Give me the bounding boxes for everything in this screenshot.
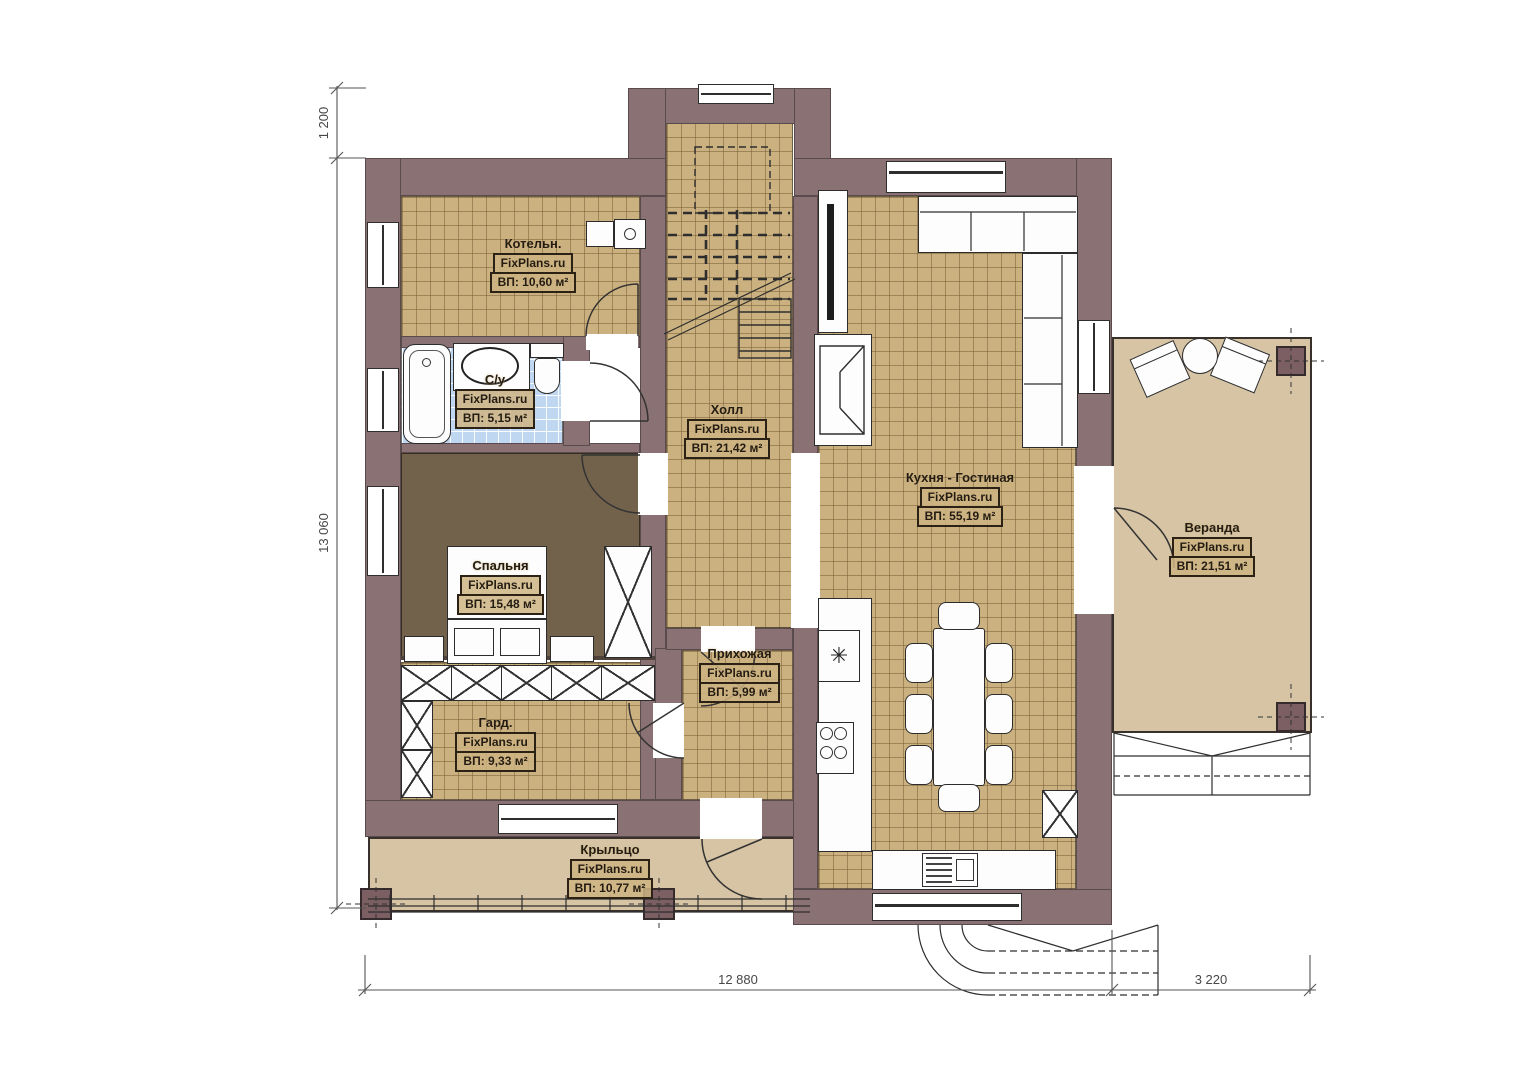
- bathtub-drain: [422, 358, 431, 367]
- sink-symbol-icon: ✳: [830, 643, 848, 669]
- nightstand: [550, 636, 594, 662]
- room-area: ВП: 55,19 м²: [917, 506, 1004, 527]
- duct-shaft: [1042, 790, 1078, 838]
- window-stair-bay: [698, 84, 774, 104]
- door-opening-bedroom: [638, 453, 668, 515]
- door-opening-wardrobe: [653, 703, 684, 758]
- watermark: FixPlans.ru: [699, 663, 780, 684]
- room-name: Веранда: [1184, 520, 1239, 535]
- veranda-post: [1276, 702, 1306, 732]
- floor-hall-stairs: [666, 122, 793, 628]
- pillow: [500, 628, 540, 656]
- floor-plan-canvas: ✳ Котельн. FixPlans.ru ВП: 10,60 м² С/у …: [0, 0, 1528, 1080]
- dim-veranda-width: 3 220: [1195, 972, 1228, 987]
- room-label-porch: Крыльцо FixPlans.ru ВП: 10,77 м²: [540, 842, 680, 899]
- dim-bay-offset: 1 200: [316, 107, 331, 140]
- watermark: FixPlans.ru: [687, 419, 768, 440]
- watermark: FixPlans.ru: [455, 389, 536, 410]
- watermark: FixPlans.ru: [455, 732, 536, 753]
- door-opening-bathroom: [561, 361, 592, 421]
- wardrobe-cabinet: [451, 665, 502, 701]
- room-area: ВП: 21,51 м²: [1169, 556, 1256, 577]
- room-name: Холл: [711, 402, 744, 417]
- chair: [905, 643, 933, 683]
- door-opening-boiler: [586, 334, 638, 350]
- door-opening-porch: [700, 798, 762, 839]
- dresser: [604, 546, 652, 658]
- room-name: Прихожая: [707, 646, 771, 661]
- room-area: ВП: 10,77 м²: [567, 878, 654, 899]
- kitchen-sink: ✳: [818, 630, 860, 682]
- wardrobe-cabinet: [401, 665, 452, 701]
- dim-plan-width: 12 880: [718, 972, 758, 987]
- stove-burner: [820, 746, 833, 759]
- wardrobe-cabinet: [601, 665, 655, 701]
- room-label-hall: Холл FixPlans.ru ВП: 21,42 м²: [662, 402, 792, 459]
- chair: [938, 602, 980, 630]
- chair: [985, 694, 1013, 734]
- watermark: FixPlans.ru: [493, 253, 574, 274]
- room-area: ВП: 10,60 м²: [490, 272, 577, 293]
- veranda-table: [1182, 338, 1218, 374]
- watermark: FixPlans.ru: [920, 487, 1001, 508]
- window-kitchen-right: [1078, 320, 1110, 394]
- wall-top-left: [365, 158, 666, 196]
- room-name: Кухня - Гостиная: [906, 470, 1014, 485]
- watermark: FixPlans.ru: [460, 575, 541, 596]
- chair: [985, 745, 1013, 785]
- curved-steps: [918, 925, 1158, 995]
- chair: [905, 694, 933, 734]
- bed-blanket-line: [447, 618, 547, 620]
- window-bathroom-left: [367, 368, 399, 432]
- fireplace: [814, 334, 872, 446]
- window-kitchen-top: [886, 161, 1006, 193]
- window-bedroom-left: [367, 486, 399, 576]
- appliance-vent: [926, 857, 952, 883]
- veranda-post: [1276, 346, 1306, 376]
- boiler-gauge: [624, 228, 636, 240]
- door-opening-veranda: [1074, 466, 1114, 614]
- chair: [905, 745, 933, 785]
- tv-screen: [827, 204, 834, 320]
- room-label-bathroom: С/у FixPlans.ru ВП: 5,15 м²: [430, 372, 560, 429]
- sofa-section-horizontal: [918, 196, 1078, 253]
- dim-plan-height: 13 060: [316, 513, 331, 553]
- room-area: ВП: 5,15 м²: [455, 408, 535, 429]
- stove-burner: [820, 727, 833, 740]
- room-area: ВП: 9,33 м²: [455, 751, 535, 772]
- wardrobe-cabinet: [551, 665, 602, 701]
- room-name: Котельн.: [505, 236, 562, 251]
- room-label-kitchen-living: Кухня - Гостиная FixPlans.ru ВП: 55,19 м…: [890, 470, 1030, 527]
- window-wardrobe-bottom: [498, 804, 618, 834]
- room-area: ВП: 21,42 м²: [684, 438, 771, 459]
- nightstand: [404, 636, 444, 662]
- veranda-steps: [1114, 733, 1310, 795]
- appliance-panel: [956, 859, 974, 881]
- toilet-tank: [530, 343, 564, 358]
- pillow: [454, 628, 494, 656]
- room-label-veranda: Веранда FixPlans.ru ВП: 21,51 м²: [1142, 520, 1282, 577]
- room-label-entry: Прихожая FixPlans.ru ВП: 5,99 м²: [672, 646, 807, 703]
- window-boiler-left: [367, 222, 399, 288]
- room-area: ВП: 5,99 м²: [699, 682, 779, 703]
- room-name: Гард.: [479, 715, 513, 730]
- room-label-boiler: Котельн. FixPlans.ru ВП: 10,60 м²: [468, 236, 598, 293]
- chair: [938, 784, 980, 812]
- stove-burner: [834, 727, 847, 740]
- window-kitchen-bottom: [872, 893, 1022, 921]
- sofa-section-vertical: [1022, 253, 1078, 448]
- room-name: С/у: [485, 372, 505, 387]
- room-area: ВП: 15,48 м²: [457, 594, 544, 615]
- opening-hall-kitchen: [791, 453, 820, 628]
- stove-burner: [834, 746, 847, 759]
- wardrobe-cabinet: [501, 665, 552, 701]
- watermark: FixPlans.ru: [1172, 537, 1253, 558]
- chair: [985, 643, 1013, 683]
- room-label-bedroom: Спальня FixPlans.ru ВП: 15,48 м²: [433, 558, 568, 615]
- watermark: FixPlans.ru: [570, 859, 651, 880]
- room-label-wardrobe: Гард. FixPlans.ru ВП: 9,33 м²: [428, 715, 563, 772]
- room-name: Спальня: [472, 558, 528, 573]
- dining-table: [933, 628, 985, 786]
- room-name: Крыльцо: [580, 842, 639, 857]
- wall-bath-bedroom: [401, 443, 640, 453]
- porch-post: [360, 888, 392, 920]
